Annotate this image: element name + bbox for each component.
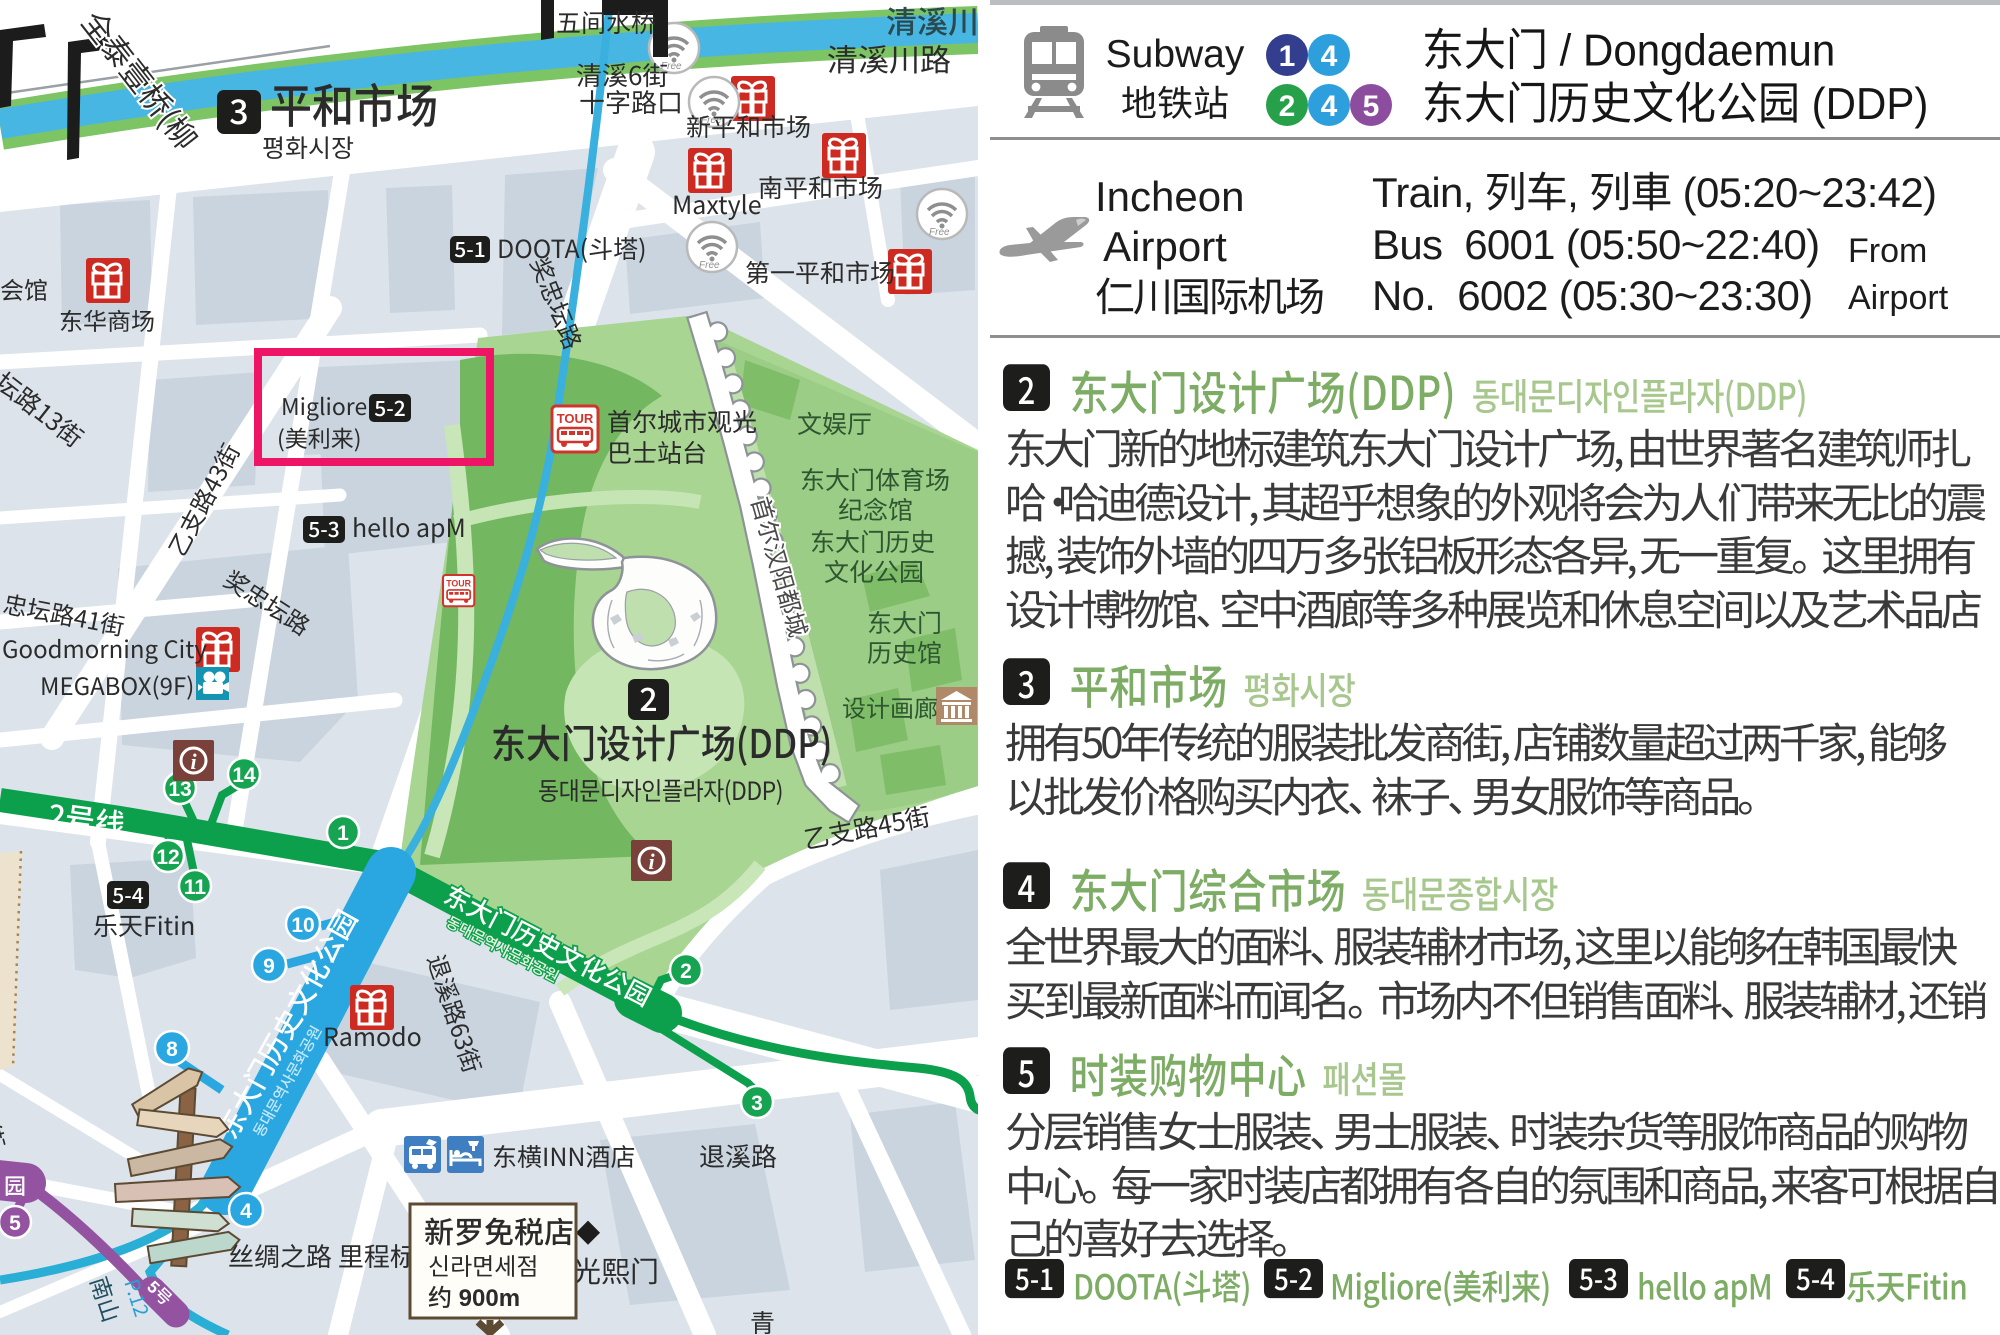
svg-text:平和市场: 平和市场: [270, 68, 438, 137]
svg-text:东华商场: 东华商场: [59, 302, 155, 337]
svg-text:5-3: 5-3: [308, 514, 339, 544]
svg-text:Ramodo: Ramodo: [323, 1018, 422, 1054]
svg-text:(美利来): (美利来): [277, 420, 362, 454]
svg-text:退溪路: 退溪路: [699, 1137, 777, 1174]
svg-text:东大门设计广场(DDP): 东大门设计广场(DDP): [491, 712, 832, 769]
svg-text:13: 13: [168, 778, 191, 801]
svg-text:3: 3: [229, 85, 248, 134]
svg-text:2: 2: [1279, 90, 1296, 123]
svg-text:五间水桥: 五间水桥: [556, 4, 656, 40]
svg-text:8: 8: [166, 1038, 178, 1061]
svg-text:5-1: 5-1: [454, 234, 485, 264]
svg-text:5-4: 5-4: [112, 880, 143, 910]
svg-text:4: 4: [1321, 90, 1338, 123]
svg-text:纪念馆: 纪念馆: [838, 491, 913, 527]
svg-text:清溪川路: 清溪川路: [827, 35, 951, 80]
svg-text:文化公园: 文化公园: [824, 553, 924, 589]
svg-text:新罗免税店: 新罗免税店: [424, 1217, 574, 1250]
svg-text:1: 1: [337, 822, 349, 845]
svg-text:신라면세점: 신라면세점: [428, 1254, 538, 1281]
svg-text:1: 1: [1279, 40, 1296, 73]
svg-text:文娱厅: 文娱厅: [797, 405, 872, 441]
svg-text:10: 10: [291, 914, 314, 937]
svg-text:Migliore: Migliore: [281, 388, 367, 422]
svg-text:4: 4: [240, 1200, 252, 1223]
svg-text:乐天Fitin: 乐天Fitin: [93, 907, 195, 943]
svg-text:12: 12: [156, 846, 179, 869]
svg-text:新平和市场: 新平和市场: [686, 108, 811, 144]
svg-text:设计画廊: 设计画廊: [842, 689, 938, 724]
svg-text:hello apM: hello apM: [352, 509, 466, 545]
svg-text:14: 14: [232, 764, 256, 787]
svg-text:第一平和市场: 第一平和市场: [745, 254, 895, 290]
svg-text:동대문디자인플라자(DDP): 동대문디자인플라자(DDP): [538, 771, 783, 808]
svg-text:东横INN酒店: 东横INN酒店: [492, 1138, 635, 1174]
svg-text:5: 5: [1363, 90, 1380, 123]
svg-text:평화시장: 평화시장: [262, 129, 354, 165]
svg-text:丝绸之路 里程标: 丝绸之路 里程标: [228, 1237, 416, 1274]
svg-text:会馆: 会馆: [0, 271, 48, 306]
svg-text:DOOTA(斗塔): DOOTA(斗塔): [497, 230, 647, 266]
svg-text:Maxtyle: Maxtyle: [672, 186, 762, 222]
svg-text:Goodmorning City: Goodmorning City: [2, 630, 207, 665]
svg-text:南平和市场: 南平和市场: [758, 169, 883, 205]
svg-text:9: 9: [263, 955, 275, 978]
svg-text:4: 4: [1321, 40, 1338, 73]
svg-text:11: 11: [184, 876, 207, 899]
svg-text:5-2: 5-2: [374, 393, 405, 423]
svg-text:历史馆: 历史馆: [867, 634, 942, 670]
svg-text:2: 2: [680, 960, 692, 983]
svg-text:十字路口: 十字路口: [579, 83, 683, 120]
svg-text:园: 园: [4, 1174, 26, 1199]
svg-text:3: 3: [751, 1092, 763, 1115]
svg-text:青: 青: [750, 1304, 775, 1335]
svg-text:5: 5: [9, 1212, 21, 1235]
svg-text:约 900m: 约 900m: [428, 1285, 520, 1312]
svg-text:MEGABOX(9F): MEGABOX(9F): [40, 667, 194, 702]
svg-text:光熙门: 光熙门: [572, 1249, 659, 1291]
svg-text:巴士站台: 巴士站台: [607, 434, 707, 470]
